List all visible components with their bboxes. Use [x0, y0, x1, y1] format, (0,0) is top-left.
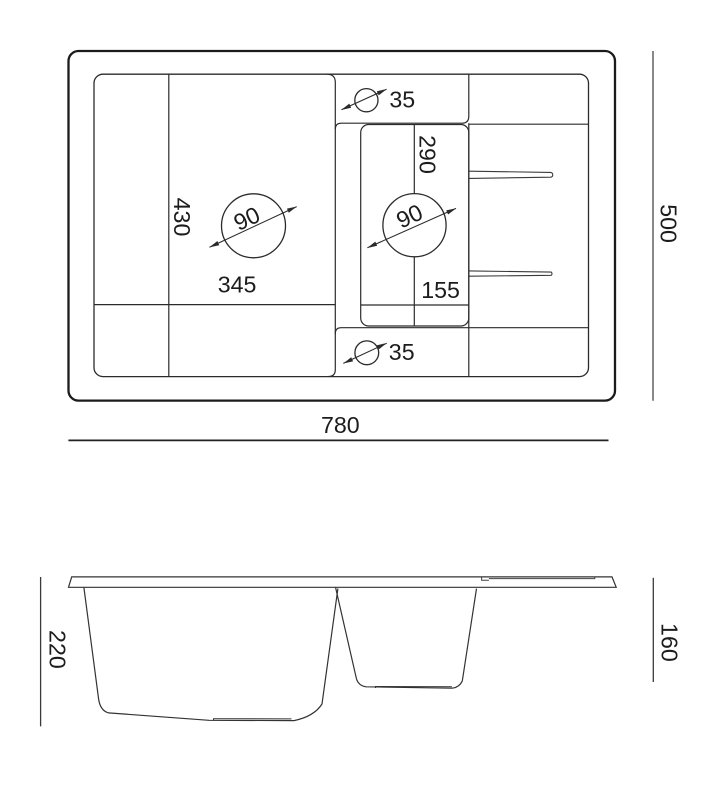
- svg-text:90: 90: [230, 201, 264, 235]
- svg-text:220: 220: [44, 630, 70, 669]
- svg-text:160: 160: [656, 623, 682, 662]
- svg-text:35: 35: [389, 87, 415, 113]
- svg-text:35: 35: [389, 339, 415, 365]
- svg-text:290: 290: [415, 135, 441, 174]
- svg-text:430: 430: [169, 198, 195, 237]
- svg-text:780: 780: [321, 412, 360, 438]
- svg-text:500: 500: [655, 204, 681, 243]
- svg-text:90: 90: [392, 199, 426, 233]
- svg-text:155: 155: [421, 277, 460, 303]
- svg-text:345: 345: [218, 272, 257, 298]
